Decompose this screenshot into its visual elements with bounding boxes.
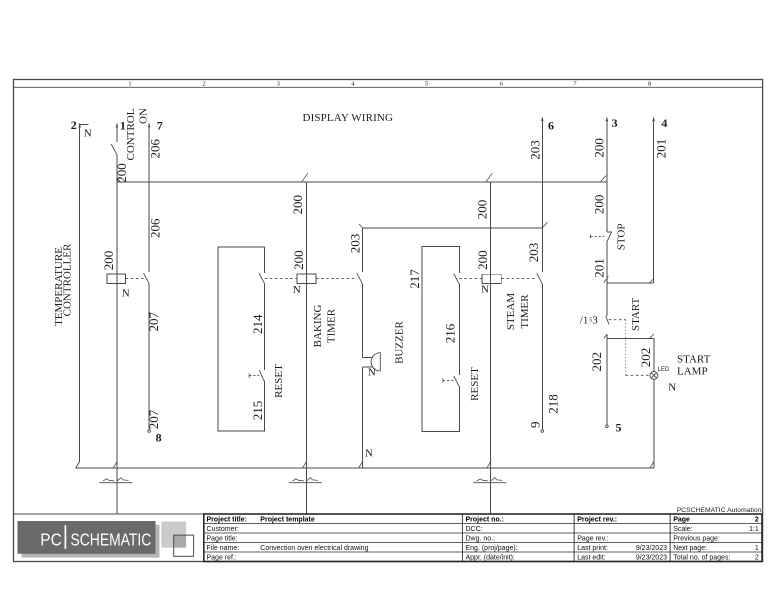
svg-text:216: 216: [442, 323, 457, 343]
svg-text:8: 8: [648, 81, 651, 88]
svg-text:218: 218: [546, 394, 561, 414]
svg-text:Last print:: Last print:: [577, 545, 608, 552]
svg-text:4: 4: [661, 116, 667, 130]
svg-text:214: 214: [250, 314, 265, 334]
svg-text:N: N: [481, 284, 489, 296]
svg-text:203: 203: [527, 140, 542, 160]
svg-text:STEAM: STEAM: [505, 293, 517, 331]
svg-text:200: 200: [475, 250, 490, 270]
svg-text:207: 207: [146, 311, 161, 331]
svg-text:2: 2: [202, 81, 205, 88]
svg-text:5: 5: [616, 420, 622, 434]
svg-text:Convection oven electrical dra: Convection oven electrical drawing: [260, 545, 368, 552]
svg-text:PCSCHEMATIC Automation: PCSCHEMATIC Automation: [677, 507, 762, 514]
svg-text:Appr. (date/init):: Appr. (date/init):: [466, 554, 515, 561]
svg-text:5: 5: [425, 81, 428, 88]
svg-text:3: 3: [592, 314, 598, 326]
svg-text:Page: Page: [673, 516, 690, 523]
svg-text:START: START: [677, 353, 711, 365]
svg-text:1: 1: [755, 545, 759, 552]
svg-text:201: 201: [591, 258, 606, 278]
svg-text:STOP: STOP: [616, 224, 628, 251]
svg-text:9/23/2023: 9/23/2023: [636, 554, 667, 561]
svg-text:202: 202: [589, 352, 604, 372]
svg-text:Previous page:: Previous page:: [673, 535, 720, 542]
svg-text:3: 3: [612, 116, 618, 130]
svg-text:Page title:: Page title:: [207, 535, 238, 542]
svg-text:Project rev.:: Project rev.:: [577, 516, 617, 523]
svg-text:Next page:: Next page:: [673, 545, 707, 552]
svg-text:LAMP: LAMP: [677, 365, 708, 377]
svg-text:2: 2: [71, 118, 77, 132]
svg-text:N: N: [122, 288, 130, 300]
svg-text:7: 7: [157, 118, 163, 132]
svg-text:Project no.:: Project no.:: [466, 516, 505, 523]
svg-text:200: 200: [591, 195, 606, 215]
svg-text:Page ref.:: Page ref.:: [207, 554, 237, 561]
svg-text:RESET: RESET: [469, 367, 481, 401]
svg-text:N: N: [668, 382, 676, 394]
svg-text:207: 207: [146, 409, 161, 429]
svg-text:BUZZER: BUZZER: [393, 320, 405, 363]
svg-text:BAKING: BAKING: [312, 305, 324, 348]
svg-text:N: N: [84, 127, 92, 139]
svg-text:200: 200: [101, 251, 116, 271]
svg-text:RESET: RESET: [273, 364, 285, 398]
svg-text:Project template: Project template: [260, 516, 315, 523]
svg-text:206: 206: [147, 218, 162, 238]
svg-text:N: N: [365, 448, 373, 460]
svg-text:3: 3: [277, 81, 280, 88]
svg-text:200: 200: [591, 138, 606, 158]
svg-text:1:1: 1:1: [749, 526, 759, 533]
svg-text:START: START: [630, 297, 642, 331]
svg-text:Customer:: Customer:: [207, 526, 239, 533]
svg-text:CONTROLLER: CONTROLLER: [62, 243, 74, 316]
svg-text:DISPLAY WIRING: DISPLAY WIRING: [302, 112, 393, 124]
svg-text:8: 8: [156, 430, 162, 444]
svg-text:202: 202: [638, 348, 653, 368]
svg-text:PC: PC: [40, 529, 62, 549]
svg-text:9/23/2023: 9/23/2023: [636, 545, 667, 552]
svg-text:1: 1: [128, 81, 131, 88]
svg-text:200: 200: [114, 163, 129, 183]
svg-text:N: N: [293, 284, 301, 296]
svg-text:TIMER: TIMER: [519, 294, 531, 329]
svg-text:DCC:: DCC:: [466, 526, 483, 533]
svg-text:1: 1: [120, 118, 126, 132]
svg-text:Eng. (proj/page):: Eng. (proj/page):: [466, 545, 518, 552]
svg-text:Total no. of pages:: Total no. of pages:: [673, 554, 730, 561]
svg-text:206: 206: [148, 139, 163, 159]
svg-text:LED: LED: [658, 367, 670, 373]
svg-text:203: 203: [526, 243, 541, 263]
svg-text:File name:: File name:: [207, 545, 240, 552]
svg-text:ON: ON: [137, 108, 149, 124]
svg-text:217: 217: [407, 269, 422, 289]
svg-text:Project title:: Project title:: [207, 516, 247, 523]
svg-text:9: 9: [527, 422, 542, 429]
svg-text:Dwg. no.:: Dwg. no.:: [466, 535, 496, 542]
svg-text:200: 200: [474, 200, 489, 220]
svg-text:201: 201: [654, 139, 669, 159]
svg-text:2: 2: [755, 554, 759, 561]
svg-text:Last edit:: Last edit:: [577, 554, 605, 561]
svg-text:200: 200: [290, 195, 305, 215]
svg-text:CONTROL: CONTROL: [125, 108, 137, 160]
svg-text:N: N: [368, 366, 376, 378]
svg-text:200: 200: [291, 250, 306, 270]
svg-text:SCHEMATIC: SCHEMATIC: [71, 529, 152, 549]
svg-text:TIMER: TIMER: [326, 308, 338, 343]
svg-text:Page rev.:: Page rev.:: [577, 535, 608, 542]
svg-text:6: 6: [548, 118, 554, 132]
svg-text:2: 2: [755, 516, 759, 523]
svg-text:215: 215: [250, 401, 265, 421]
svg-text:Scale:: Scale:: [673, 526, 693, 533]
svg-text:203: 203: [347, 234, 362, 254]
svg-text:/1: /1: [580, 314, 589, 326]
